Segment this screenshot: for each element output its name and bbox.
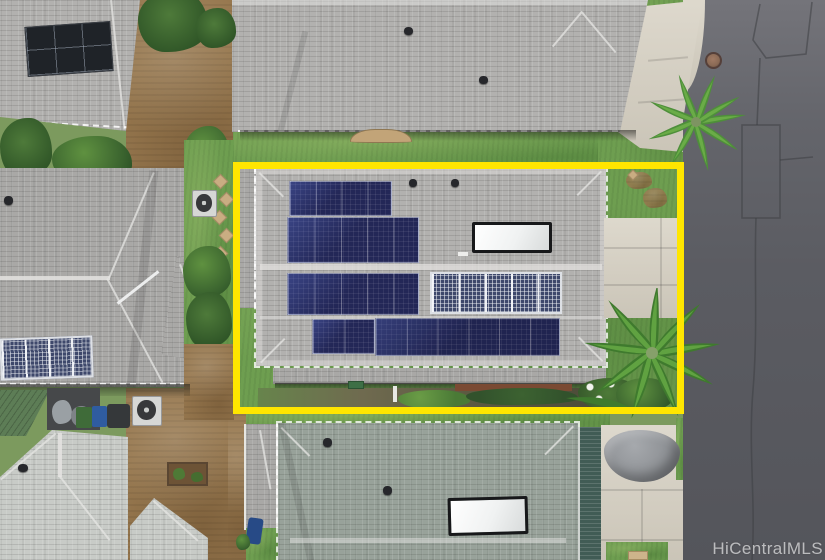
ac-unit — [132, 396, 162, 426]
carport-metal-roof — [578, 427, 603, 560]
paver — [628, 551, 648, 560]
green-metal-roof — [0, 390, 50, 436]
seedlings — [191, 472, 203, 482]
watermark: HiCentralMLS — [712, 539, 823, 559]
roof-vent — [404, 27, 413, 35]
ac-unit — [192, 190, 217, 217]
seedlings — [173, 468, 185, 480]
dark-bin — [107, 404, 130, 428]
shrub — [186, 292, 232, 348]
roof-ridge — [58, 433, 62, 477]
roof-valley — [127, 170, 159, 388]
house-wall-shadow — [240, 130, 636, 141]
roof-vent — [18, 464, 28, 472]
hip-ridge — [58, 475, 110, 541]
plant — [236, 534, 250, 550]
roof-vent — [479, 76, 488, 84]
hip-ridge — [552, 11, 583, 48]
hip-ridge — [259, 430, 271, 489]
dirt-patch — [184, 344, 234, 420]
solar-water-heater — [448, 496, 529, 536]
roof-valley — [278, 31, 308, 131]
white-grid-solar-array — [0, 335, 94, 380]
tree-canopy — [196, 8, 236, 48]
roof-vent — [323, 438, 332, 447]
blue-bin — [92, 406, 107, 427]
neighbor-house-roof-bottom-left — [0, 425, 128, 560]
garage-roof-bottom-house — [244, 424, 278, 530]
roof-ridge — [232, 0, 648, 5]
black-solar-array — [24, 21, 113, 77]
green-bin — [76, 407, 92, 428]
palm-tree-top-right — [638, 70, 754, 174]
roof-vent — [4, 196, 13, 205]
stored-items — [52, 400, 72, 424]
aerial-photo: HiCentralMLS — [0, 0, 825, 560]
property-highlight-box — [233, 162, 684, 414]
hip-ridge — [0, 433, 56, 481]
roof-ridge — [0, 276, 110, 280]
window-awning — [350, 129, 412, 143]
roof-vent — [383, 486, 392, 495]
roof-ridge — [290, 538, 566, 543]
hip-ridge — [581, 12, 616, 53]
neighbor-house-roof-top — [232, 0, 648, 132]
garden-bed — [167, 462, 208, 486]
shrub — [183, 246, 231, 298]
manhole-cover — [705, 52, 722, 69]
